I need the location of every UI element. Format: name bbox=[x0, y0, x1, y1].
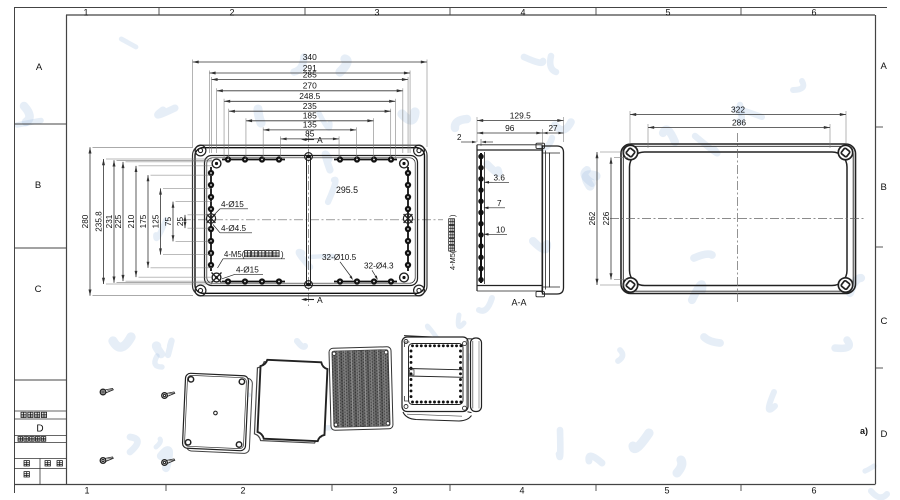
svg-text:4-M5(: 4-M5( bbox=[224, 250, 245, 259]
svg-text:1: 1 bbox=[83, 8, 88, 18]
svg-text:235: 235 bbox=[303, 101, 317, 111]
svg-text:4-Ø15: 4-Ø15 bbox=[236, 266, 259, 275]
svg-text:226: 226 bbox=[602, 211, 611, 225]
svg-text:): ) bbox=[448, 215, 457, 217]
svg-text:85: 85 bbox=[305, 129, 315, 139]
svg-text:6: 6 bbox=[811, 8, 816, 18]
svg-text:6: 6 bbox=[811, 486, 816, 496]
svg-text:A: A bbox=[36, 62, 43, 73]
svg-text:32-Ø10.5: 32-Ø10.5 bbox=[322, 253, 357, 262]
svg-text:10: 10 bbox=[496, 226, 506, 235]
svg-text:125: 125 bbox=[151, 214, 160, 228]
svg-text:D: D bbox=[881, 429, 888, 440]
svg-text:A: A bbox=[317, 295, 323, 305]
svg-text:B: B bbox=[881, 182, 887, 193]
svg-text:): ) bbox=[281, 250, 284, 259]
svg-text:a): a) bbox=[860, 426, 868, 436]
svg-text:1: 1 bbox=[84, 486, 89, 496]
svg-text:235.8: 235.8 bbox=[94, 211, 103, 232]
svg-text:295.5: 295.5 bbox=[336, 185, 358, 195]
svg-text:27: 27 bbox=[548, 124, 558, 133]
svg-text:280: 280 bbox=[81, 214, 90, 228]
svg-text:25: 25 bbox=[176, 217, 185, 227]
svg-text:210: 210 bbox=[127, 214, 136, 228]
svg-text:3: 3 bbox=[374, 8, 379, 18]
svg-text:175: 175 bbox=[139, 214, 148, 228]
svg-text:286: 286 bbox=[732, 117, 746, 127]
svg-text:285: 285 bbox=[303, 69, 317, 79]
svg-text:4-Ø4.5: 4-Ø4.5 bbox=[221, 224, 246, 233]
svg-text:340: 340 bbox=[303, 52, 317, 62]
svg-text:4-Ø15: 4-Ø15 bbox=[221, 200, 244, 209]
svg-text:A-A: A-A bbox=[511, 298, 526, 308]
svg-text:A: A bbox=[317, 135, 323, 145]
svg-text:248.5: 248.5 bbox=[299, 91, 320, 101]
svg-text:A: A bbox=[881, 61, 888, 72]
svg-text:75: 75 bbox=[164, 217, 173, 227]
svg-text:B: B bbox=[35, 180, 41, 191]
svg-text:96: 96 bbox=[505, 123, 515, 133]
svg-text:322: 322 bbox=[731, 104, 745, 114]
svg-text:C: C bbox=[881, 316, 888, 327]
svg-text:3.6: 3.6 bbox=[494, 174, 506, 183]
svg-text:7: 7 bbox=[497, 199, 502, 208]
svg-text:262: 262 bbox=[588, 211, 597, 225]
svg-text:4: 4 bbox=[520, 8, 525, 18]
svg-text:3: 3 bbox=[392, 486, 397, 496]
svg-text:270: 270 bbox=[303, 81, 317, 91]
svg-text:231: 231 bbox=[105, 214, 114, 228]
svg-text:C: C bbox=[35, 284, 42, 295]
svg-text:5: 5 bbox=[664, 486, 669, 496]
svg-text:2: 2 bbox=[240, 486, 245, 496]
svg-text:4: 4 bbox=[519, 486, 524, 496]
svg-text:2: 2 bbox=[229, 8, 234, 18]
svg-text:D: D bbox=[36, 424, 43, 435]
svg-text:5: 5 bbox=[665, 8, 670, 18]
svg-text:4-M5(: 4-M5( bbox=[448, 250, 457, 270]
svg-text:225: 225 bbox=[114, 214, 123, 228]
svg-text:32-Ø4.3: 32-Ø4.3 bbox=[364, 262, 394, 271]
svg-text:129.5: 129.5 bbox=[510, 110, 531, 120]
svg-text:2: 2 bbox=[457, 133, 462, 142]
